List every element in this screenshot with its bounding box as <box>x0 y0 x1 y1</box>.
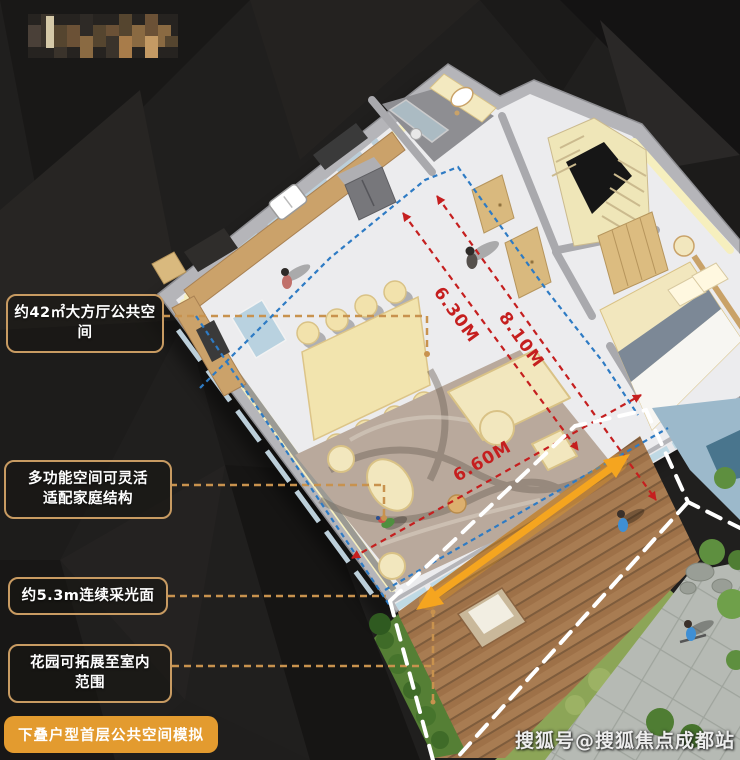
callout-garden: 花园可拓展至室内 范围 <box>8 644 172 703</box>
callout-text: 花园可拓展至室内 <box>16 653 164 673</box>
promo-floorplan-image: 6.30M 8.10M 6.60M <box>0 0 740 760</box>
watermark: 搜狐号@搜狐焦点成都站 <box>515 726 735 753</box>
bedside-table <box>674 236 694 256</box>
callout-text: 约5.3m连续采光面 <box>16 586 160 606</box>
callout-text: 约42㎡大方厅公共空间 <box>14 303 156 344</box>
toilet <box>411 129 422 140</box>
callout-flex-space: 多功能空间可灵活 适配家庭结构 <box>4 460 172 519</box>
blurred-logo-mosaic <box>28 14 178 58</box>
callout-living-area: 约42㎡大方厅公共空间 <box>6 294 164 353</box>
callout-daylight: 约5.3m连续采光面 <box>8 577 168 615</box>
callout-text: 多功能空间可灵活 <box>12 469 164 489</box>
caption-badge: 下叠户型首层公共空间模拟 <box>4 716 218 753</box>
